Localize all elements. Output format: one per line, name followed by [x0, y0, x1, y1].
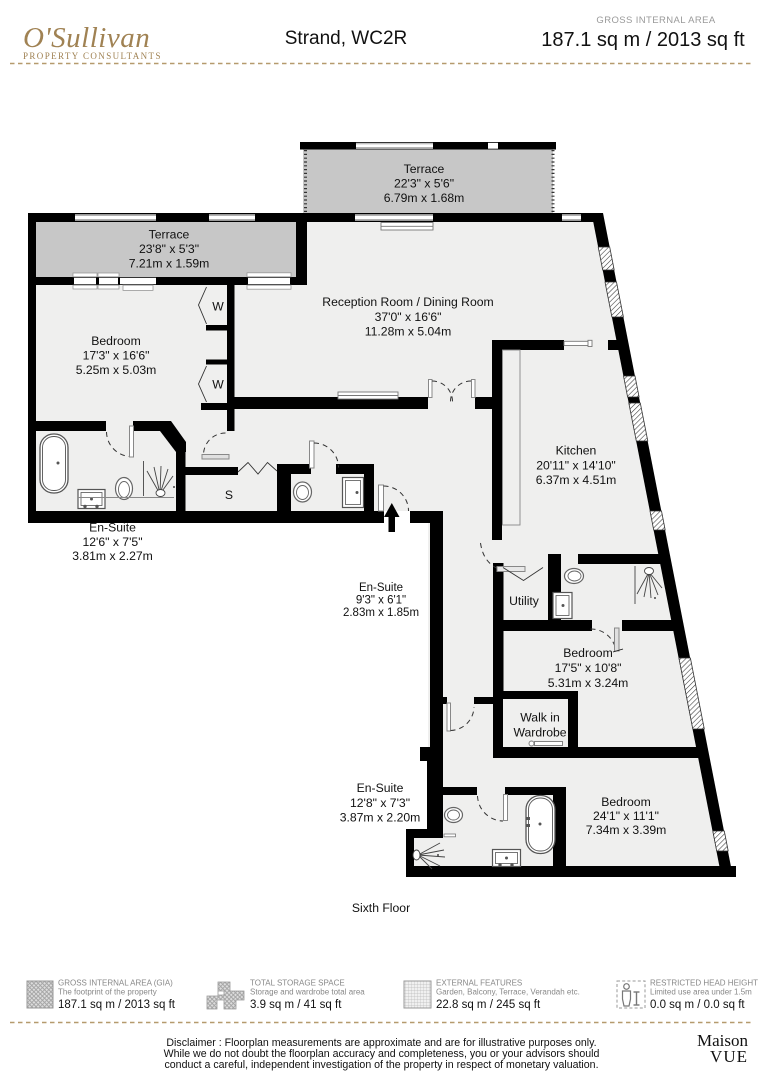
- svg-text:S: S: [225, 488, 233, 502]
- svg-text:5.31m x 3.24m: 5.31m x 3.24m: [548, 676, 629, 690]
- svg-text:W: W: [212, 300, 224, 314]
- svg-text:3.9 sq m / 41 sq ft: 3.9 sq m / 41 sq ft: [250, 999, 342, 1011]
- svg-text:20'11" x 14'10": 20'11" x 14'10": [536, 459, 616, 473]
- svg-text:Bedroom: Bedroom: [601, 795, 650, 809]
- svg-text:GROSS INTERNAL AREA (GIA): GROSS INTERNAL AREA (GIA): [58, 979, 173, 988]
- svg-text:Bedroom: Bedroom: [91, 334, 140, 348]
- svg-text:En-Suite: En-Suite: [89, 521, 136, 535]
- svg-text:22'3" x 5'6": 22'3" x 5'6": [394, 177, 454, 191]
- svg-text:23'8" x 5'3": 23'8" x 5'3": [139, 242, 199, 256]
- svg-text:3.81m x 2.27m: 3.81m x 2.27m: [72, 549, 153, 563]
- svg-text:Walk in: Walk in: [520, 711, 560, 725]
- svg-text:Reception Room / Dining Room: Reception Room / Dining Room: [322, 295, 493, 309]
- svg-text:Garden, Balcony, Terrace, Vera: Garden, Balcony, Terrace, Verandah etc.: [436, 988, 580, 997]
- svg-text:Limited use area under 1.5m: Limited use area under 1.5m: [650, 988, 752, 997]
- svg-text:Storage and wardrobe total are: Storage and wardrobe total area: [250, 988, 365, 997]
- svg-text:7.34m x 3.39m: 7.34m x 3.39m: [586, 823, 667, 837]
- svg-text:6.37m x 4.51m: 6.37m x 4.51m: [536, 473, 617, 487]
- svg-text:En-Suite: En-Suite: [359, 582, 403, 594]
- svg-text:Wardrobe: Wardrobe: [513, 726, 566, 740]
- svg-text:7.21m x 1.59m: 7.21m x 1.59m: [129, 257, 210, 271]
- svg-text:Terrace: Terrace: [149, 228, 190, 242]
- svg-text:5.25m x 5.03m: 5.25m x 5.03m: [76, 363, 157, 377]
- svg-text:17'5" x 10'8": 17'5" x 10'8": [555, 661, 622, 675]
- svg-text:17'3" x 16'6": 17'3" x 16'6": [83, 349, 150, 363]
- svg-text:24'1" x 11'1": 24'1" x 11'1": [593, 809, 659, 823]
- svg-text:Sixth Floor: Sixth Floor: [352, 901, 410, 915]
- svg-text:12'6" x 7'5": 12'6" x 7'5": [82, 535, 142, 549]
- svg-text:TOTAL STORAGE SPACE: TOTAL STORAGE SPACE: [250, 979, 345, 988]
- svg-text:0.0 sq m / 0.0 sq ft: 0.0 sq m / 0.0 sq ft: [650, 999, 745, 1011]
- svg-text:The footprint of the property: The footprint of the property: [58, 988, 157, 997]
- svg-text:Bedroom: Bedroom: [563, 646, 612, 660]
- svg-text:RESTRICTED HEAD HEIGHT: RESTRICTED HEAD HEIGHT: [650, 979, 758, 988]
- svg-text:Kitchen: Kitchen: [556, 444, 597, 458]
- svg-text:2.83m x 1.85m: 2.83m x 1.85m: [343, 607, 419, 619]
- svg-text:W: W: [212, 378, 224, 392]
- svg-text:187.1 sq m / 2013 sq ft: 187.1 sq m / 2013 sq ft: [58, 999, 176, 1011]
- svg-text:9'3" x 6'1": 9'3" x 6'1": [356, 595, 406, 607]
- svg-text:3.87m x 2.20m: 3.87m x 2.20m: [340, 811, 421, 825]
- svg-text:22.8 sq m / 245 sq ft: 22.8 sq m / 245 sq ft: [436, 999, 541, 1011]
- svg-text:Utility: Utility: [509, 594, 540, 608]
- svg-text:12'8" x 7'3": 12'8" x 7'3": [350, 796, 410, 810]
- svg-text:EXTERNAL FEATURES: EXTERNAL FEATURES: [436, 979, 522, 988]
- svg-text:Terrace: Terrace: [404, 162, 445, 176]
- svg-text:37'0" x 16'6": 37'0" x 16'6": [375, 310, 442, 324]
- svg-text:6.79m x 1.68m: 6.79m x 1.68m: [384, 191, 465, 205]
- svg-text:11.28m x 5.04m: 11.28m x 5.04m: [365, 325, 451, 339]
- svg-text:En-Suite: En-Suite: [357, 781, 404, 795]
